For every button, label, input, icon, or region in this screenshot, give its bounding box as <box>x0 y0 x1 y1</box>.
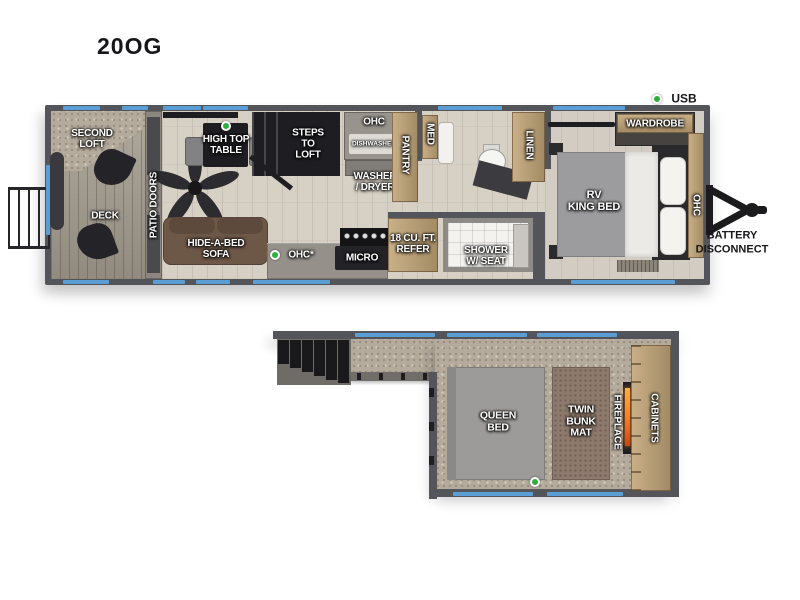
steps-treads <box>252 112 286 176</box>
wall-post <box>429 422 434 431</box>
stair-tread <box>302 340 313 372</box>
window-segment <box>153 280 185 284</box>
window-segment <box>253 280 330 284</box>
patio-doors-label: PATIO DOORS <box>149 172 160 238</box>
fireplace-label: FIREPLACE <box>612 395 623 450</box>
second-loft-label: SECOND LOFT <box>71 128 113 150</box>
window-segment <box>547 492 623 496</box>
stair-tread <box>338 340 349 383</box>
dishwasher-label: DISHWASHER <box>352 140 396 147</box>
wall-post <box>429 388 434 397</box>
railing-post <box>357 373 361 380</box>
cabinet-drawers <box>631 345 641 491</box>
steps-to-loft-label: STEPS TO LOFT <box>292 128 324 161</box>
foot-rug <box>617 260 659 272</box>
window-segment <box>203 106 248 110</box>
ohc-galley-label: OHC <box>363 117 385 128</box>
window-segment <box>553 106 625 110</box>
fireplace-flame-icon <box>625 388 630 446</box>
loft-floorplan: QUEEN BED TWIN BUNK MAT FIREPLACE CABINE… <box>273 330 683 500</box>
kitchen-dot <box>270 250 280 260</box>
bed-pillow <box>660 207 686 255</box>
linen-label: LINEN <box>524 130 535 159</box>
wall-post <box>429 456 434 465</box>
window-bench <box>163 112 238 118</box>
window-segment <box>537 333 617 337</box>
ohc-kitchen-label: OHC* <box>288 250 313 261</box>
window-segment <box>63 106 100 110</box>
railing-post <box>401 373 405 380</box>
closet-rod <box>548 122 615 127</box>
ohc-bedroom-label: OHC <box>691 194 702 216</box>
railing-post <box>379 373 383 380</box>
interior-wall <box>545 111 551 169</box>
sofa-cushion <box>217 217 263 234</box>
usb-dot <box>652 94 662 104</box>
window-segment <box>453 492 533 496</box>
wardrobe-label: WARDROBE <box>626 119 684 130</box>
interior-wall <box>533 212 545 279</box>
window-segment <box>122 106 148 110</box>
micro-label: MICRO <box>346 253 378 264</box>
shower-label: SHOWER W/ SEAT <box>464 245 508 267</box>
queen-bed-headboard <box>447 367 456 480</box>
window-segment <box>46 165 50 235</box>
loft-walkway <box>351 339 435 372</box>
twin-bunk-mat-label: TWIN BUNK MAT <box>566 405 596 440</box>
stair-tread <box>278 340 289 364</box>
pantry-label: PANTRY <box>400 136 411 175</box>
hide-a-bed-sofa-label: HIDE-A-BED SOFA <box>188 238 245 260</box>
usb-dot <box>221 121 231 131</box>
window-segment <box>196 280 230 284</box>
bath-sink <box>438 122 454 164</box>
exterior-ladder <box>8 187 50 249</box>
refer-label: 18 CU. FT. REFER <box>390 233 436 255</box>
bed-blanket <box>625 152 658 257</box>
queen-bed-label: QUEEN BED <box>480 410 516 433</box>
window-segment <box>438 106 502 110</box>
page-title: 20OG <box>97 33 162 60</box>
usb-label: USB <box>671 92 696 105</box>
cabinets-label: CABINETS <box>649 393 660 443</box>
deck-label: DECK <box>91 211 119 222</box>
washer-dryer-label: WASHER / DRYER <box>354 171 397 193</box>
window-segment <box>571 280 675 284</box>
bed-pillow <box>660 157 686 205</box>
sofa-cushion <box>169 217 215 234</box>
floorplan-page: 20OG HIGH TOP TABLE HIDE-A-BED SOFA <box>0 0 800 600</box>
med-label: MED <box>425 123 436 145</box>
window-segment <box>63 280 109 284</box>
window-segment <box>355 333 435 337</box>
high-top-table-label: HIGH TOP TABLE <box>203 134 250 156</box>
shower-seat <box>513 224 529 268</box>
battery-disconnect-label: BATTERY DISCONNECT <box>696 229 769 257</box>
window-segment <box>447 333 527 337</box>
stair-tread <box>290 340 301 368</box>
loft-right-wall <box>671 331 679 497</box>
stove <box>340 228 388 246</box>
stair-tread <box>314 340 325 376</box>
table-chair <box>185 137 204 166</box>
railing-post <box>423 373 427 380</box>
rv-king-bed-label: RV KING BED <box>568 189 620 213</box>
stair-tread <box>326 340 337 380</box>
deck-door <box>50 152 64 230</box>
loft-stairs <box>277 339 351 385</box>
loft-dot <box>530 477 540 487</box>
window-segment <box>163 106 201 110</box>
